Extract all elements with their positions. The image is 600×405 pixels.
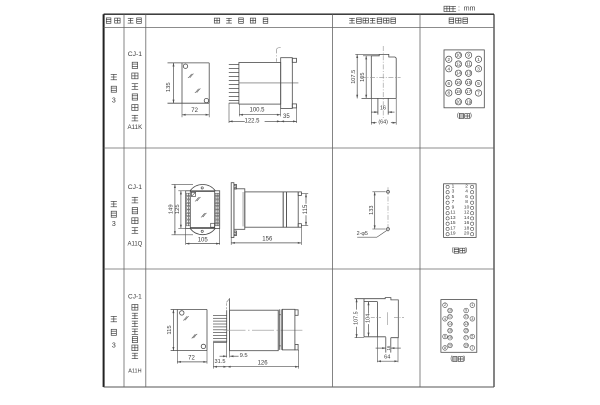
svg-text:3: 3 [477,66,480,71]
svg-text:2: 2 [444,303,446,307]
svg-text:16: 16 [464,220,470,226]
svg-text:20: 20 [448,343,452,347]
svg-text:115: 115 [167,325,173,334]
svg-text:35: 35 [283,114,290,120]
svg-text:A11Q: A11Q [127,242,142,248]
svg-text:13: 13 [466,71,472,76]
svg-text:17: 17 [450,225,456,231]
svg-text:105: 105 [198,238,209,244]
svg-text:): ) [463,356,465,362]
svg-text:3: 3 [471,317,473,321]
svg-text:CJ-1: CJ-1 [128,294,142,301]
svg-text:6: 6 [465,194,468,200]
svg-text:107.5: 107.5 [354,311,360,325]
svg-text:12: 12 [448,315,452,319]
svg-text:126: 126 [258,360,269,366]
svg-text:105: 105 [360,73,366,82]
svg-text:20: 20 [456,99,462,104]
svg-text:8: 8 [444,346,446,350]
svg-text:115: 115 [303,204,309,214]
svg-text:72: 72 [188,356,195,362]
svg-text:19: 19 [450,231,456,237]
svg-text:104: 104 [365,314,371,323]
svg-text:7: 7 [452,199,455,205]
svg-text:15: 15 [450,220,456,226]
svg-text:17: 17 [464,336,468,340]
svg-text:(64): (64) [378,120,388,126]
svg-text:10: 10 [456,53,462,58]
svg-text:A11H: A11H [128,369,141,375]
svg-text:107.5: 107.5 [351,70,357,84]
svg-text:7: 7 [471,346,473,350]
svg-text:72: 72 [191,108,198,114]
svg-text:1: 1 [452,183,455,189]
svg-text:8: 8 [465,199,468,205]
svg-text:2: 2 [448,57,451,62]
svg-text:15: 15 [466,80,472,85]
svg-text:4: 4 [444,317,446,321]
svg-text:9: 9 [452,204,455,210]
svg-text:64: 64 [384,355,390,361]
svg-text:122.5: 122.5 [244,118,260,124]
svg-text:6: 6 [448,81,451,86]
svg-text:133: 133 [369,206,375,215]
svg-text:10: 10 [448,309,452,313]
svg-text:10: 10 [464,204,470,210]
svg-text:135: 135 [166,82,172,92]
svg-text:11: 11 [450,210,455,216]
svg-text:3: 3 [112,343,116,350]
svg-text:5: 5 [477,81,480,86]
svg-text:7: 7 [477,91,480,96]
svg-text:31.5: 31.5 [215,359,226,365]
svg-text:149: 149 [168,204,174,214]
svg-text:20: 20 [464,231,470,237]
svg-text:9: 9 [465,309,467,313]
svg-text:CJ-1: CJ-1 [128,184,143,191]
svg-text:8: 8 [448,91,451,96]
svg-text:4: 4 [465,189,468,195]
svg-text:16: 16 [456,80,462,85]
svg-text:3: 3 [112,221,116,228]
svg-text:CJ-1: CJ-1 [128,51,143,58]
svg-text:5: 5 [471,335,473,339]
svg-text:18: 18 [448,336,452,340]
svg-text:3: 3 [452,189,455,195]
svg-text::: : [458,6,460,13]
svg-text:13: 13 [464,322,468,326]
svg-text:(: ( [452,248,454,254]
svg-text:156: 156 [262,237,273,243]
svg-text:14: 14 [464,215,470,221]
svg-text:11: 11 [466,62,471,67]
svg-text:mm: mm [464,6,476,13]
svg-text:16: 16 [380,105,386,111]
svg-text:12: 12 [464,210,470,216]
svg-text:18: 18 [456,89,462,94]
svg-text:12: 12 [456,62,462,67]
svg-text:5: 5 [452,194,455,200]
svg-text:(: ( [450,356,452,362]
svg-text:A11K: A11K [128,124,144,131]
svg-text:100.5: 100.5 [249,108,265,114]
svg-text:9.5: 9.5 [240,353,248,359]
svg-text:1: 1 [471,303,473,307]
svg-text:11: 11 [464,315,468,319]
svg-text:3: 3 [112,98,116,105]
svg-text:2: 2 [465,183,468,189]
svg-text:19: 19 [466,99,472,104]
svg-text:18: 18 [464,225,470,231]
svg-text:16: 16 [448,329,452,333]
svg-text:6: 6 [444,335,446,339]
svg-text:): ) [470,113,472,119]
svg-text:14: 14 [448,322,452,326]
svg-text:19: 19 [464,343,468,347]
svg-text:17: 17 [466,89,472,94]
svg-text:4: 4 [448,66,451,71]
svg-text:(: ( [457,113,459,119]
svg-text:1: 1 [477,57,480,62]
svg-text:): ) [465,248,467,254]
svg-text:13: 13 [450,215,456,221]
svg-text:16: 16 [386,345,391,350]
svg-text:9: 9 [467,53,470,58]
svg-text:15: 15 [464,329,468,333]
svg-text:125: 125 [175,204,181,214]
svg-text:2-φ5: 2-φ5 [357,231,368,237]
svg-text:14: 14 [456,71,462,76]
